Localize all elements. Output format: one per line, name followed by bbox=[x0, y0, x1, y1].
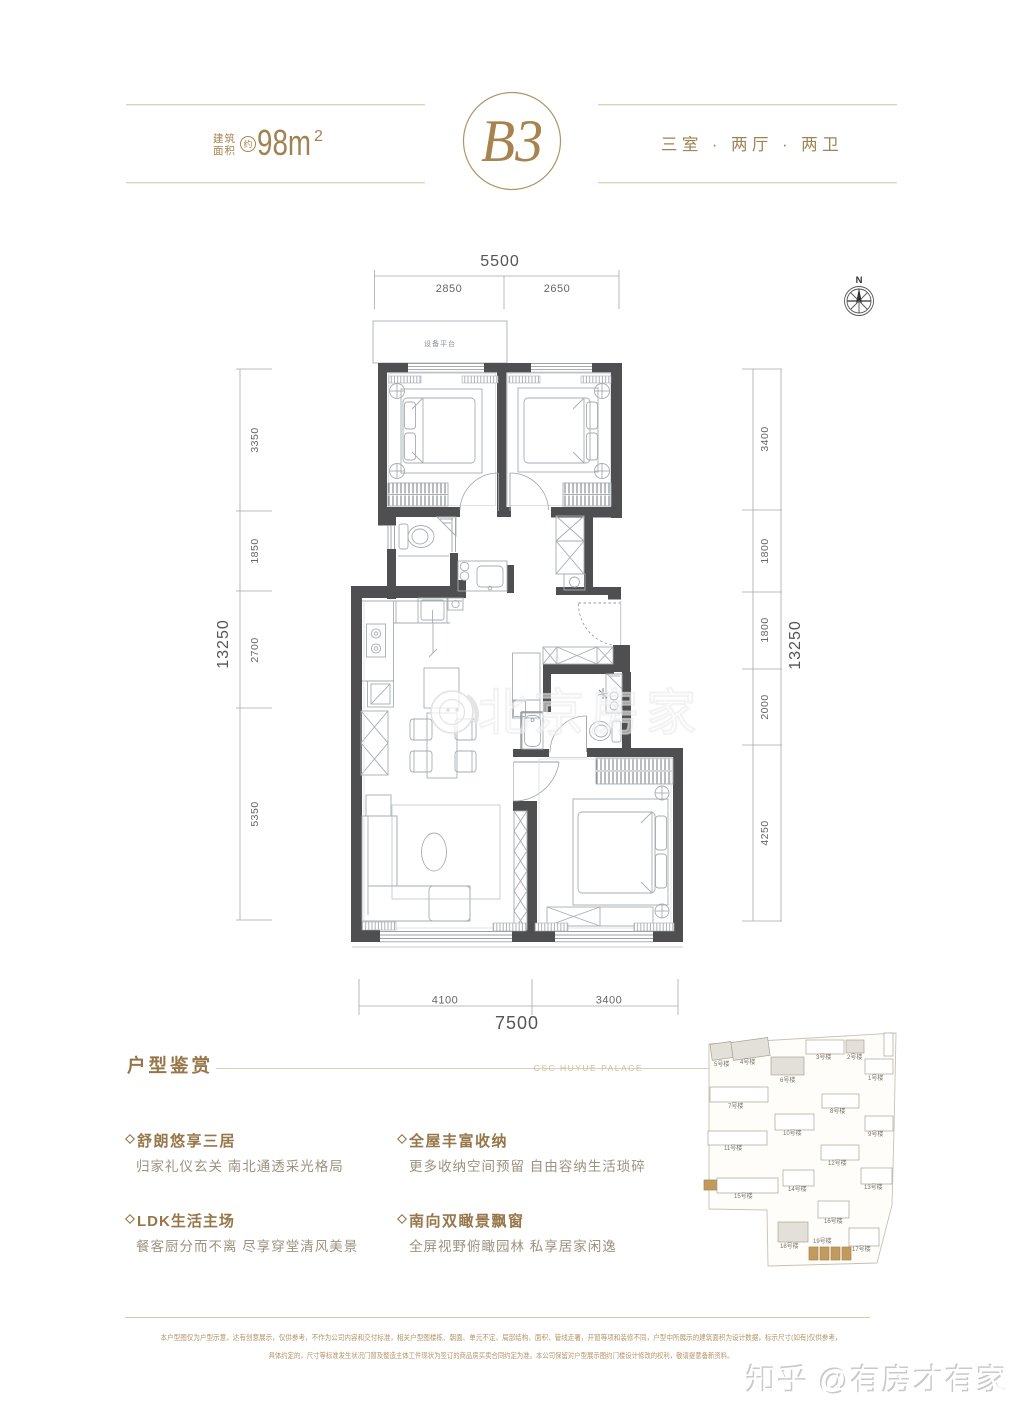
svg-text:13号楼: 13号楼 bbox=[864, 1183, 883, 1191]
svg-text:餐客厨分而不离 尽享穿堂清风美景: 餐客厨分而不离 尽享穿堂清风美景 bbox=[136, 1238, 358, 1254]
svg-text:17号楼: 17号楼 bbox=[852, 1245, 871, 1253]
svg-text:B3: B3 bbox=[481, 108, 543, 174]
svg-text:2650: 2650 bbox=[544, 283, 570, 295]
svg-text:6号楼: 6号楼 bbox=[780, 1076, 795, 1084]
svg-text:10号楼: 10号楼 bbox=[783, 1129, 802, 1137]
svg-text:3号楼: 3号楼 bbox=[816, 1053, 831, 1061]
svg-text:2: 2 bbox=[314, 128, 323, 145]
svg-text:舒朗悠享三居: 舒朗悠享三居 bbox=[137, 1132, 236, 1150]
svg-text:南向双瞰景飘窗: 南向双瞰景飘窗 bbox=[409, 1212, 525, 1230]
svg-text:2号楼: 2号楼 bbox=[847, 1053, 862, 1061]
svg-text:户型鉴赏: 户型鉴赏 bbox=[127, 1055, 213, 1076]
svg-text:本户型图仅为户型示意，达有创意展示，仅供参考，不作为公司内容: 本户型图仅为户型示意，达有创意展示，仅供参考，不作为公司内容和交付标准，相关户型… bbox=[161, 1332, 842, 1342]
svg-text:三室 · 两厅 · 两卫: 三室 · 两厅 · 两卫 bbox=[661, 135, 843, 154]
svg-text:1号楼: 1号楼 bbox=[868, 1074, 883, 1082]
svg-text:7号楼: 7号楼 bbox=[728, 1102, 743, 1110]
svg-text:3350: 3350 bbox=[249, 427, 261, 452]
svg-text:1800: 1800 bbox=[759, 617, 771, 642]
svg-text:2700: 2700 bbox=[249, 637, 261, 662]
svg-text:16号楼: 16号楼 bbox=[824, 1217, 843, 1225]
svg-text:5350: 5350 bbox=[249, 801, 261, 826]
svg-text:4100: 4100 bbox=[432, 995, 458, 1007]
svg-text:知乎 @有房才有家: 知乎 @有房才有家 bbox=[747, 1364, 1009, 1398]
svg-text:13250: 13250 bbox=[787, 620, 804, 670]
svg-text:3400: 3400 bbox=[596, 995, 622, 1007]
svg-text:5500: 5500 bbox=[480, 253, 520, 270]
svg-text:5号楼: 5号楼 bbox=[714, 1060, 729, 1068]
svg-text:11号楼: 11号楼 bbox=[724, 1144, 742, 1152]
svg-text:CSC HUYUE PALACE: CSC HUYUE PALACE bbox=[534, 1063, 643, 1073]
svg-text:14号楼: 14号楼 bbox=[788, 1185, 807, 1193]
svg-text:1800: 1800 bbox=[759, 538, 771, 563]
svg-text:设备平台: 设备平台 bbox=[424, 339, 456, 348]
svg-text:面积: 面积 bbox=[213, 145, 236, 157]
svg-text:更多收纳空间预留 自由容纳生活琐碎: 更多收纳空间预留 自由容纳生活琐碎 bbox=[409, 1158, 646, 1174]
svg-text:19号楼: 19号楼 bbox=[813, 1237, 832, 1245]
svg-text:9号楼: 9号楼 bbox=[868, 1130, 883, 1138]
svg-text:N: N bbox=[856, 275, 863, 286]
svg-text:归家礼仪玄关 南北通透采光格局: 归家礼仪玄关 南北通透采光格局 bbox=[136, 1158, 344, 1174]
svg-text:LDK生活主场: LDK生活主场 bbox=[137, 1212, 235, 1230]
svg-text:具体约定的，尺寸等标准发生状况门窗及整造主体工件现状为签订的: 具体约定的，尺寸等标准发生状况门窗及整造主体工件现状为签订的商品房买卖合同约定为… bbox=[269, 1350, 734, 1360]
svg-text:15号楼: 15号楼 bbox=[734, 1192, 753, 1200]
svg-text:4号楼: 4号楼 bbox=[740, 1058, 755, 1066]
svg-text:北京房家: 北京房家 bbox=[478, 685, 702, 741]
svg-text:约: 约 bbox=[243, 139, 252, 150]
svg-text:2000: 2000 bbox=[759, 694, 771, 719]
svg-text:建筑: 建筑 bbox=[213, 132, 236, 145]
svg-text:全屋丰富收纳: 全屋丰富收纳 bbox=[408, 1132, 508, 1150]
svg-text:12号楼: 12号楼 bbox=[828, 1159, 847, 1167]
svg-text:18号楼: 18号楼 bbox=[780, 1242, 799, 1250]
svg-text:7500: 7500 bbox=[495, 1013, 539, 1033]
svg-text:8号楼: 8号楼 bbox=[830, 1107, 845, 1115]
svg-text:2850: 2850 bbox=[436, 283, 462, 295]
svg-text:全屏视野俯瞰园林 私享居家闲逸: 全屏视野俯瞰园林 私享居家闲逸 bbox=[409, 1238, 617, 1254]
svg-text:1850: 1850 bbox=[249, 538, 261, 563]
svg-text:13250: 13250 bbox=[215, 619, 232, 669]
svg-text:98m: 98m bbox=[257, 122, 311, 163]
svg-text:4250: 4250 bbox=[759, 820, 771, 845]
svg-text:3400: 3400 bbox=[759, 426, 771, 451]
